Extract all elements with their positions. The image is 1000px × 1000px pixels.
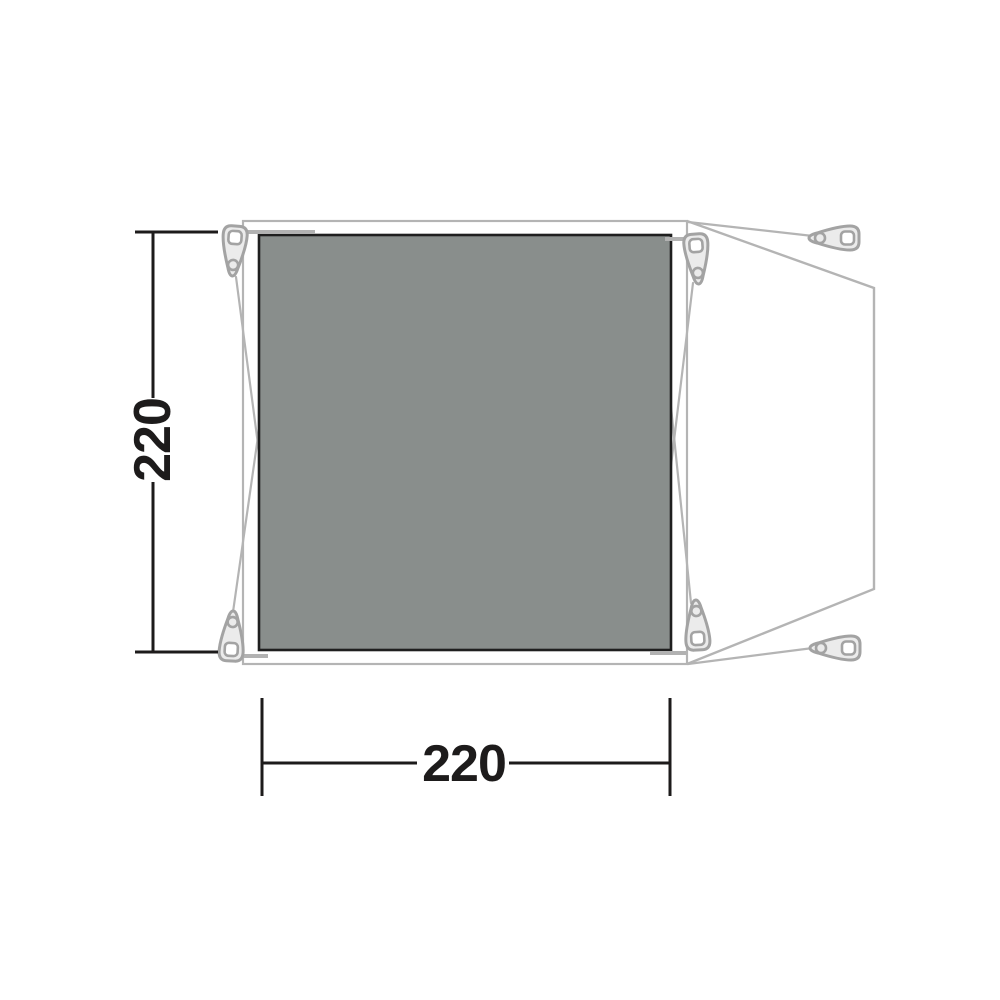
width-dimension-label: 220 — [422, 735, 506, 793]
height-dimension-label: 220 — [124, 398, 182, 482]
height-dimension: 220 — [124, 232, 218, 652]
diagram-canvas: 220 220 — [0, 0, 1000, 1000]
porch-panel-outline — [687, 221, 874, 664]
tent-peg-icon — [219, 610, 246, 661]
tent-footprint-diagram: 220 220 — [0, 0, 1000, 1000]
tent-peg-icon — [810, 636, 860, 660]
tent-peg-icon — [809, 226, 859, 250]
groundsheet — [259, 235, 671, 650]
width-dimension: 220 — [262, 698, 670, 796]
